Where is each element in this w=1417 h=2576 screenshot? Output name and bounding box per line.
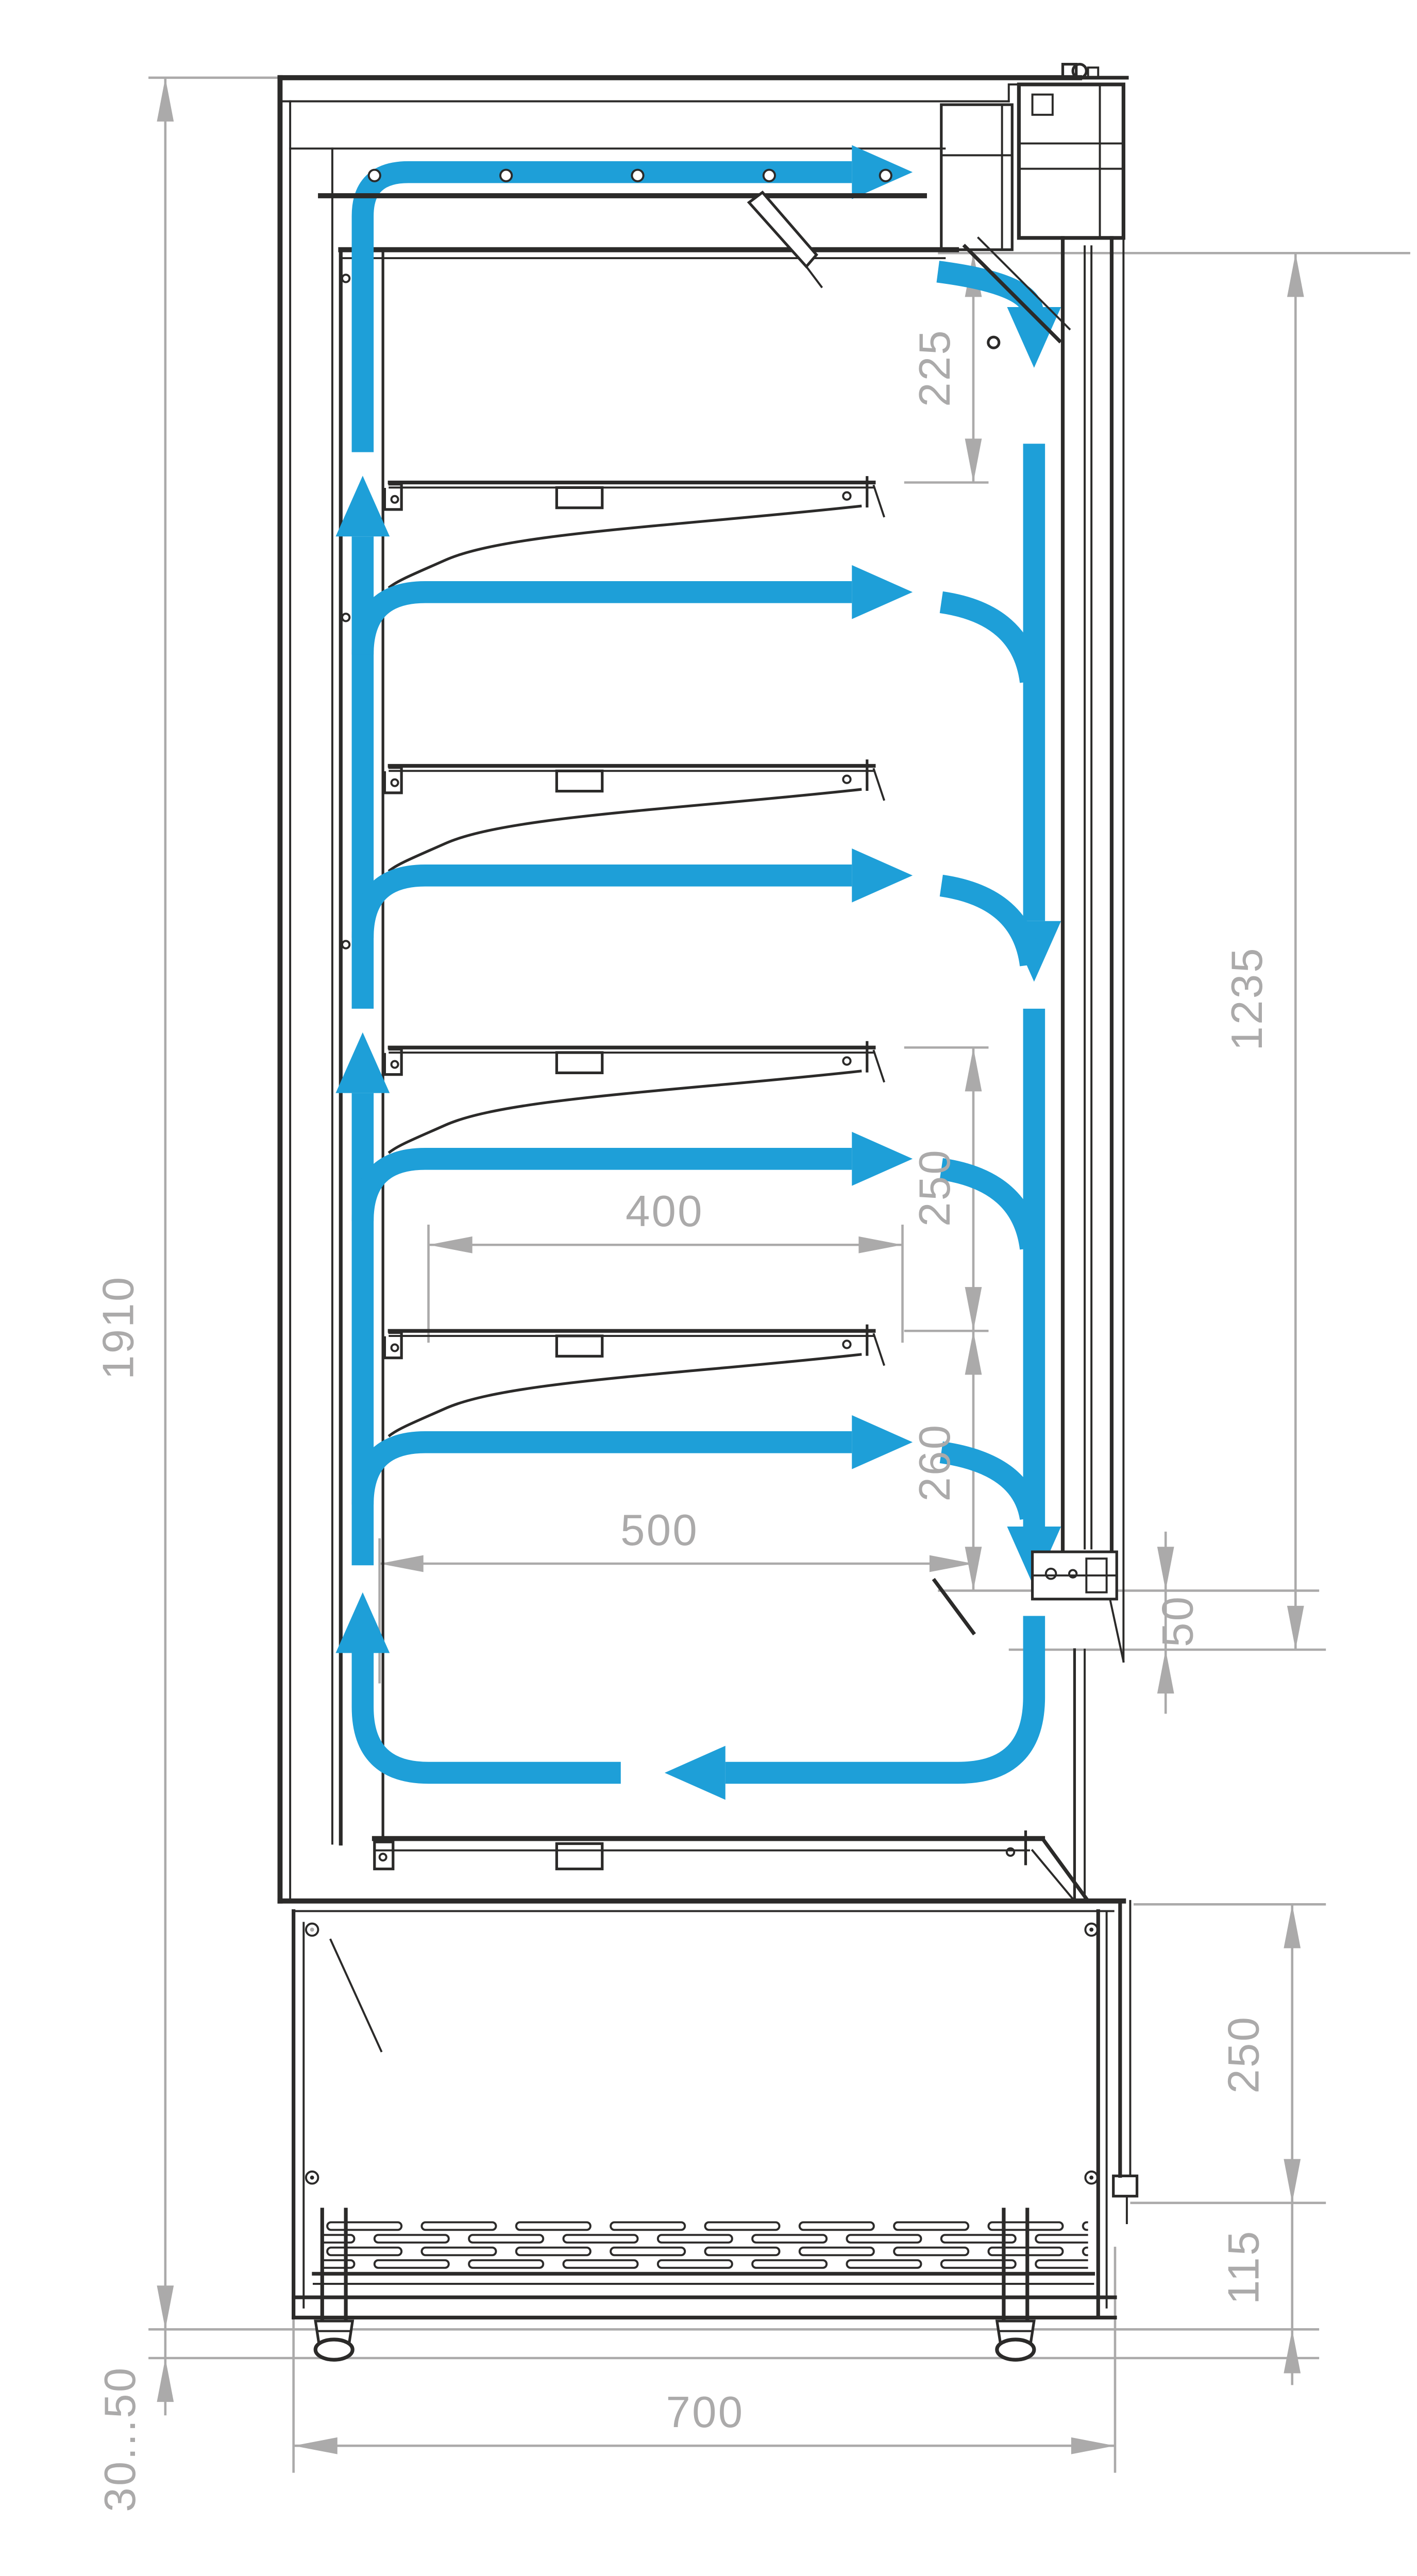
door-bottom-rail	[1033, 1552, 1124, 1662]
dim-label-leg-adjustment: 30...50	[96, 2366, 145, 2512]
dim-label-shelf-depth: 400	[626, 1187, 704, 1236]
screws	[306, 1924, 1098, 2184]
louver-grille	[324, 2220, 1088, 2270]
door-top-frame	[1019, 64, 1123, 238]
shelf-branch-flow	[363, 592, 852, 654]
dim-label-lowest-shelf-gap: 260	[910, 1423, 959, 1502]
right-arrow-icon	[852, 849, 913, 903]
shelf-2	[384, 761, 884, 871]
shelf-4	[384, 1326, 884, 1435]
dimension-lines	[148, 78, 1410, 2473]
dim-label-overall-depth: 700	[666, 2388, 745, 2437]
dimension-labels: 225 1235 250 400 260 500 50 1910 250 115…	[94, 329, 1272, 2512]
dim-label-top-air-gap: 225	[910, 329, 959, 407]
well-floor	[375, 1832, 1088, 1901]
right-arrow-icon	[852, 565, 913, 619]
dim-label-opening-height: 1235	[1223, 946, 1272, 1050]
outlet-deflector	[935, 1581, 973, 1633]
dim-label-shelf-pitch: 250	[910, 1148, 959, 1227]
return-flow	[363, 1653, 621, 1773]
glass-door	[1063, 84, 1124, 1662]
shelves	[384, 478, 884, 1436]
dim-label-well-depth: 500	[620, 1506, 699, 1555]
dim-label-outlet-gap: 50	[1154, 1595, 1203, 1647]
right-arrow-icon	[852, 1415, 913, 1469]
display-cabinet-section-drawing: 225 1235 250 400 260 500 50 1910 250 115…	[0, 0, 1417, 2576]
dim-label-base-height: 250	[1219, 2015, 1268, 2094]
fan-housing	[941, 105, 1013, 250]
technical-drawing-page: 225 1235 250 400 260 500 50 1910 250 115…	[0, 0, 1417, 2576]
dim-label-overall-height: 1910	[94, 1275, 143, 1379]
air-deflector	[749, 192, 817, 266]
left-arrow-icon	[665, 1746, 726, 1800]
shelf-1	[384, 478, 884, 587]
dim-label-plinth-height: 115	[1219, 2229, 1268, 2304]
shelf-3	[384, 1042, 884, 1152]
machine-compartment	[280, 1901, 1137, 2318]
right-arrow-icon	[852, 1132, 913, 1186]
